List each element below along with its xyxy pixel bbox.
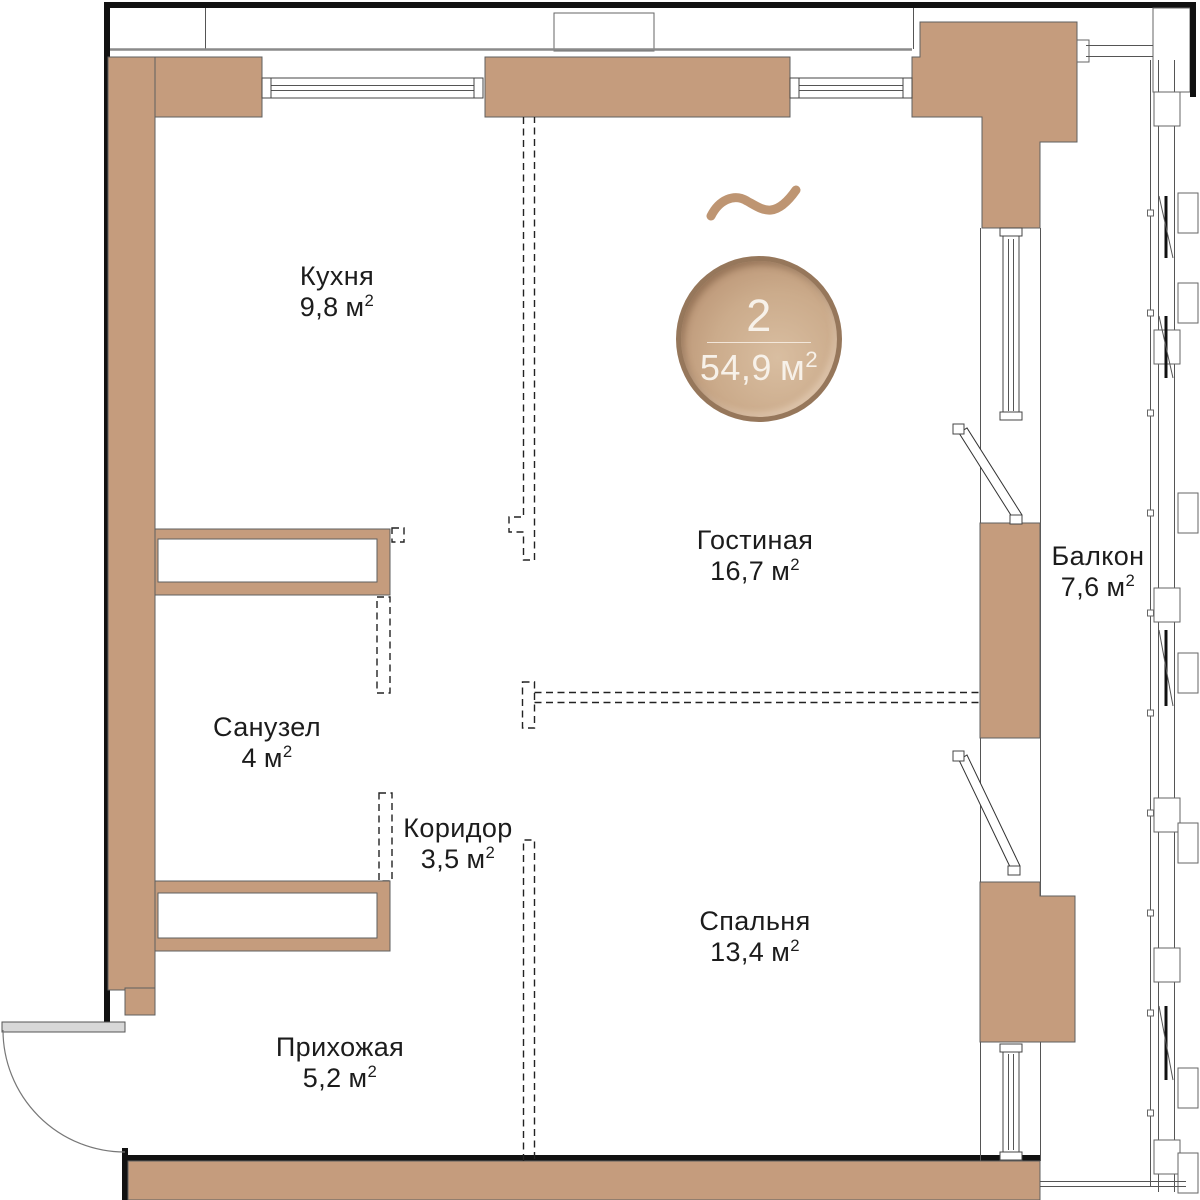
badge-divider xyxy=(707,342,811,343)
entry-door-arc xyxy=(3,1030,125,1152)
balcony-door-bedroom xyxy=(953,751,1020,875)
wave-icon xyxy=(711,190,796,216)
balcony-pillar-mid xyxy=(980,523,1040,738)
balcony-pillar-low xyxy=(980,882,1075,1042)
kitchen-window xyxy=(262,78,483,98)
badge-rooms-count: 2 xyxy=(746,293,772,338)
floor-plan: 2 54,9м2 Кухня 9,8м2 Гостиная 16,7м2 Сан… xyxy=(0,0,1200,1200)
balcony-window-lower xyxy=(1000,1044,1022,1160)
wall-top-right-corner xyxy=(912,22,1077,228)
partition-hallway-bedroom xyxy=(524,840,535,1161)
area-badge: 2 54,9м2 xyxy=(676,256,842,422)
living-window xyxy=(790,78,912,98)
room-label-corridor: Коридор 3,5м2 xyxy=(403,813,512,874)
wall-left-step xyxy=(125,988,155,1015)
entry-door xyxy=(2,1022,125,1152)
wall-bottom-edge xyxy=(122,1148,128,1200)
wall-bottom xyxy=(128,1161,1040,1200)
room-label-living: Гостиная 16,7м2 xyxy=(697,525,814,586)
room-label-hallway: Прихожая 5,2м2 xyxy=(276,1032,404,1093)
wall-left xyxy=(108,57,155,990)
badge-total-area: 54,9м2 xyxy=(700,349,818,386)
entry-door-leaf xyxy=(2,1022,125,1032)
partition-kitchen-living xyxy=(509,117,535,560)
wall-bottom-black xyxy=(128,1155,1040,1161)
room-label-kitchen: Кухня 9,8м2 xyxy=(300,261,374,322)
room-label-balcony: Балкон 7,6м2 xyxy=(1052,541,1145,602)
balcony-window-upper xyxy=(1000,228,1022,420)
room-label-bedroom: Спальня 13,4м2 xyxy=(699,906,810,967)
balcony-door-living xyxy=(953,424,1022,524)
partition-living-bedroom xyxy=(523,682,981,728)
room-label-bathroom: Санузел 4м2 xyxy=(213,712,321,773)
floor-plan-drawing xyxy=(0,0,1200,1200)
outer-walls xyxy=(108,22,1077,1200)
wall-top-mid xyxy=(485,57,790,117)
